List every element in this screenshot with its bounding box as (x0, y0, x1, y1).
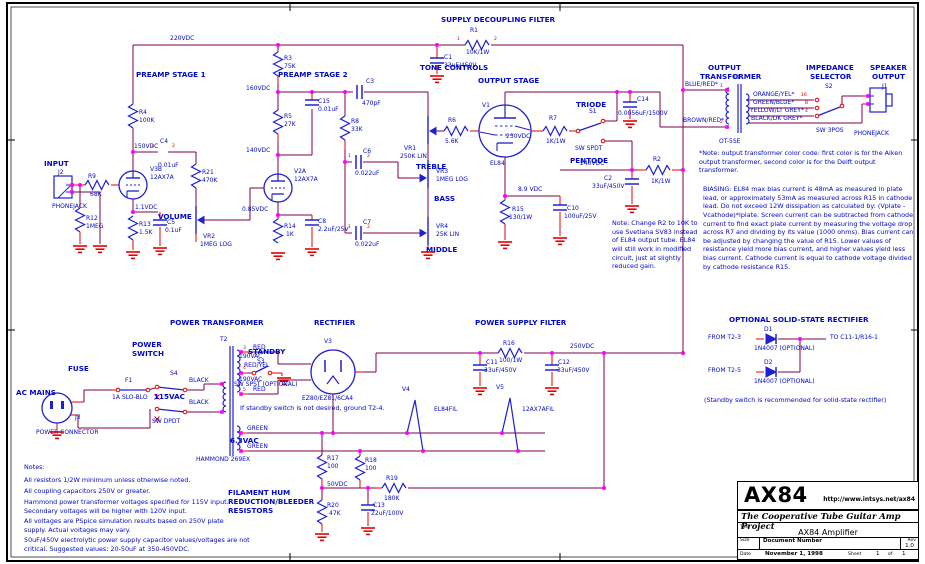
schematic-label: VR2 (203, 234, 215, 240)
schematic-label: C10 (567, 206, 579, 212)
schematic-label: OUTPUT STAGE (478, 77, 539, 84)
schematic-label: 0.022uF (355, 242, 379, 248)
schematic-label: R7 (549, 116, 557, 122)
project-name: The Cooperative Tube Guitar Amp Project (738, 511, 918, 523)
schematic-label: EL84FIL (434, 407, 457, 413)
schematic-sheet: SUPPLY DECOUPLING FILTERPREAMP STAGE 1PR… (0, 0, 925, 564)
schematic-label: R21 (202, 170, 214, 176)
schematic-label: 250K LIN (400, 154, 427, 160)
schematic-label: 2 (367, 155, 370, 160)
schematic-label: RED (253, 345, 266, 351)
schematic-label: 12AX7A (294, 177, 318, 183)
schematic-label: V4 (402, 387, 410, 393)
schematic-label: R12 (86, 216, 98, 222)
schematic-label: 12AX7A (150, 175, 174, 181)
schematic-label: V1 (482, 103, 490, 109)
schematic-label: 22uF/100V (371, 511, 403, 517)
schematic-label: 4 (243, 367, 246, 372)
doc-number-label: Document Number (763, 538, 822, 544)
schematic-label: 10K/1W (466, 50, 489, 56)
schematic-label: POWER CONNECTOR (36, 430, 99, 436)
schematic-label: POWER TRANSFORMER (170, 319, 264, 326)
schematic-label: 140VDC (246, 148, 270, 154)
date-value: November 1, 1998 (765, 551, 823, 557)
schematic-label: T1 (733, 75, 740, 81)
sheet-label: Sheet (848, 552, 861, 557)
schematic-label: VR3 (436, 169, 448, 175)
schematic-label: PREAMP STAGE 1 (136, 71, 206, 78)
schematic-label: D1 (764, 327, 772, 333)
schematic-label: 230VDC (506, 134, 530, 140)
schematic-label: POWER SUPPLY FILTER (475, 319, 566, 326)
note-resistors: All resistors 1/2W minimum unless otherw… (24, 476, 249, 485)
schematic-label: 16 (801, 94, 807, 99)
ax84-logo: AX84 (744, 483, 808, 507)
schematic-label: 1 (151, 145, 154, 150)
schematic-label: 1.5K (139, 230, 152, 236)
date-label: Date (740, 552, 751, 557)
schematic-label: C15 (318, 99, 330, 105)
schematic-label: 1MEG LOG (200, 242, 232, 248)
sheet-total: 1 (902, 551, 906, 557)
schematic-label: R17 (327, 456, 339, 462)
schematic-label: 1K (286, 232, 294, 238)
schematic-label: J1 (882, 84, 888, 90)
schematic-label: ORANGE/YEL* (753, 92, 795, 98)
schematic-label: INPUT (44, 160, 69, 167)
schematic-label: 150VDC (134, 144, 158, 150)
schematic-label: 0.85VDC (242, 207, 268, 213)
schematic-label: 4 (805, 110, 808, 115)
schematic-label: 115VAC (154, 393, 185, 400)
schematic-label: J2 (58, 170, 64, 176)
schematic-label: 1N4007 (OPTIONAL) (754, 379, 815, 385)
biasing-note: BIASING: EL84 max bias current is 48mA a… (703, 185, 915, 271)
schematic-label: R4 (139, 110, 147, 116)
schematic-label: 180K (384, 496, 399, 502)
schematic-label: 100K (139, 118, 154, 124)
of-label: of (888, 552, 892, 557)
schematic-label: V5 (496, 385, 504, 391)
schematic-label: 0.0056uF/1500V (618, 111, 668, 117)
schematic-label: 27K (284, 122, 296, 128)
schematic-label: 1N4007 (OPTIONAL) (754, 346, 815, 352)
schematic-label: 75K (284, 64, 296, 70)
schematic-label: 5.6K (445, 139, 458, 145)
schematic-label: VR1 (404, 146, 416, 152)
schematic-label: OUTPUT (708, 64, 741, 71)
schematic-label: C1 (444, 55, 452, 61)
schematic-label: BLACK/DK GREY* (751, 116, 802, 122)
schematic-label: BLACK (189, 378, 209, 384)
title-block: AX84 http://www.intsys.net/ax84 The Coop… (737, 481, 919, 560)
project-url: http://www.intsys.net/ax84 (823, 496, 915, 503)
title-block-logo-row: AX84 http://www.intsys.net/ax84 (738, 482, 918, 511)
schematic-label: R13 (139, 222, 151, 228)
schematic-label: PHONEJACK (854, 131, 889, 137)
schematic-label: TRANSFORMER (700, 73, 761, 80)
schematic-label: VR4 (436, 224, 448, 230)
schematic-label: 33uF/450V (592, 184, 624, 190)
schematic-label: S1 (589, 109, 597, 115)
schematic-label: 2 (367, 226, 370, 231)
schematic-label: GREEN (247, 426, 268, 432)
schematic-label: 47K (329, 511, 341, 517)
schematic-label: R16 (503, 341, 515, 347)
schematic-label: C14 (637, 97, 649, 103)
schematic-label: 33uF/450V (484, 368, 516, 374)
schematic-label: 3 (243, 347, 246, 352)
schematic-label: 33uF/450V (557, 368, 589, 374)
schematic-label: OUTPUT (872, 73, 905, 80)
note-capacitors: All coupling capacitors 250V or greater. (24, 487, 249, 496)
schematic-label: 68K (90, 192, 102, 198)
schematic-label: OPTIONAL SOLID-STATE RECTIFIER (729, 316, 869, 323)
notes-heading: Notes: (24, 463, 45, 472)
schematic-label: SPEAKER (870, 64, 907, 71)
schematic-label: R6 (448, 118, 456, 124)
schematic-label: 2 (720, 121, 723, 126)
note-pspice: All voltages are PSpice simulation resul… (24, 517, 236, 534)
schematic-label: GREEN (247, 444, 268, 450)
schematic-label: 250VDC (570, 344, 594, 350)
sheet-number: 1 (876, 551, 880, 557)
schematic-label: C8 (318, 219, 326, 225)
schematic-label: 470pF (362, 101, 381, 107)
schematic-label: 100 (327, 464, 338, 470)
schematic-label: 130/1W (509, 215, 532, 221)
schematic-label: 1.1VDC (135, 205, 157, 211)
schematic-label: BASS (434, 195, 455, 202)
ot-color-note: *Note: output transformer color code: fi… (699, 149, 915, 175)
schematic-label: 8.9 VDC (518, 187, 542, 193)
schematic-label: 160VDC (246, 86, 270, 92)
schematic-label: SWITCH (132, 350, 164, 357)
note-transformer-voltages: Hammond power transformer voltages speci… (24, 498, 236, 515)
schematic-label: 2 (494, 38, 497, 43)
schematic-label: SW SPDT (575, 146, 602, 152)
schematic-label: J3 (75, 415, 81, 421)
schematic-label: C13 (373, 503, 385, 509)
schematic-label: AC MAINS (16, 389, 56, 396)
schematic-label: C12 (558, 360, 570, 366)
schematic-label: OT-5SE (719, 139, 740, 145)
schematic-label: FROM T2-5 (708, 368, 741, 374)
schematic-label: 0.01uF (318, 107, 339, 113)
schematic-label: 8 (805, 102, 808, 107)
title-row: Title AX84 Amplifier (738, 524, 918, 538)
schematic-label: R20 (327, 503, 339, 509)
schematic-label: 33K (351, 127, 363, 133)
schematic-label: R18 (365, 458, 377, 464)
schematic-label: R8 (351, 119, 359, 125)
schematic-label: C3 (366, 79, 374, 85)
schematic-label: R19 (386, 476, 398, 482)
schematic-label: 1K/1W (651, 179, 671, 185)
schematic-label: 100 (365, 466, 376, 472)
schematic-label: EZ80/EZ81/6CA4 (302, 396, 353, 402)
schematic-label: 240VDC (580, 161, 604, 167)
schematic-label: 1 (348, 226, 351, 231)
schematic-label: R5 (284, 114, 292, 120)
schematic-label: V3B (150, 167, 162, 173)
schematic-label: S3 (257, 359, 265, 365)
schematic-label: 2 (172, 145, 175, 150)
schematic-label: V2A (294, 169, 306, 175)
schematic-label: 5 (243, 389, 246, 394)
size-label: Size (740, 538, 749, 543)
schematic-label: C4 (160, 139, 168, 145)
schematic-label: 220VDC (170, 36, 194, 42)
schematic-label: MIDDLE (426, 246, 457, 253)
schematic-label: R2 (653, 157, 661, 163)
schematic-label: 2.2uF/25V (318, 227, 349, 233)
schematic-label: SELECTOR (810, 73, 851, 80)
schematic-label: 1A SLO-BLO (112, 395, 148, 401)
schematic-label: V3 (324, 339, 332, 345)
schematic-label: 1 (720, 85, 723, 90)
schematic-label: SUPPLY DECOUPLING FILTER (441, 16, 555, 23)
schematic-label: FUSE (68, 365, 89, 372)
schematic-label: SW 3POS (816, 128, 844, 134)
schematic-label: BROWN/RED* (683, 118, 724, 124)
schematic-label: T2 (220, 337, 227, 343)
schematic-label: 100/1W (499, 358, 522, 364)
schematic-label: R15 (512, 207, 524, 213)
schematic-label: F1 (125, 378, 132, 384)
schematic-label: 0.022uF (355, 171, 379, 177)
schematic-label: HAMMOND 269EX (196, 457, 250, 463)
standby-note: If standby switch is not desired, ground… (240, 404, 385, 413)
schematic-label: C11 (486, 360, 498, 366)
schematic-label: 50VDC (327, 482, 348, 488)
schematic-label: 0.1uF (165, 228, 182, 234)
schematic-label: 1K/1W (546, 139, 566, 145)
schematic-label: D2 (764, 360, 772, 366)
schematic-label: 12AX7AFIL (522, 407, 554, 413)
schematic-label: 25K LIN (436, 232, 459, 238)
schematic-label: 1 (457, 38, 460, 43)
schematic-label: 1 (348, 155, 351, 160)
schematic-label: 1MEG LOG (436, 177, 468, 183)
schematic-label: BLACK (189, 400, 209, 406)
sheet-title: AX84 Amplifier (738, 528, 918, 537)
schematic-label: R1 (470, 28, 478, 34)
note-electrolytics: 50uF/450V electrolytic power supply capa… (24, 536, 254, 553)
schematic-label: 470K (202, 178, 217, 184)
ss-rectifier-note: (Standby switch is recommended for solid… (704, 396, 886, 405)
sv83-note: Note: Change R2 to 10K to use Svetlana S… (612, 219, 700, 271)
schematic-label: C2 (604, 176, 612, 182)
schematic-label: PREAMP STAGE 2 (278, 71, 348, 78)
schematic-label: R9 (88, 174, 96, 180)
schematic-label: 100uF/25V (564, 214, 596, 220)
schematic-label: S4 (170, 371, 178, 377)
schematic-label: POWER (132, 341, 162, 348)
schematic-label: FROM T2-3 (708, 335, 741, 341)
schematic-label: REDUCTION/BLEEDER (228, 498, 314, 505)
schematic-label: S2 (825, 84, 833, 90)
schematic-label: GREEN/BLUE* (753, 100, 794, 106)
schematic-label: R3 (284, 56, 292, 62)
schematic-label: PHONEJACK (52, 204, 87, 210)
schematic-label: 33uF/450V (444, 63, 476, 69)
schematic-label: BLUE/RED* (685, 82, 718, 88)
schematic-label: R14 (284, 224, 296, 230)
schematic-label: TO C11-1/R16-1 (830, 335, 878, 341)
schematic-label: 1MEG (86, 224, 103, 230)
schematic-label: SW DPDT (152, 419, 180, 425)
schematic-label: RECTIFIER (314, 319, 355, 326)
date-sheet-row: Date November 1, 1998 Sheet 1 of 1 (738, 549, 918, 559)
schematic-label: C5 (167, 220, 175, 226)
schematic-label: IMPEDANCE (806, 64, 854, 71)
schematic-label: YELLOW/LT GREY* (750, 108, 804, 114)
schematic-label: EL84 (490, 161, 505, 167)
